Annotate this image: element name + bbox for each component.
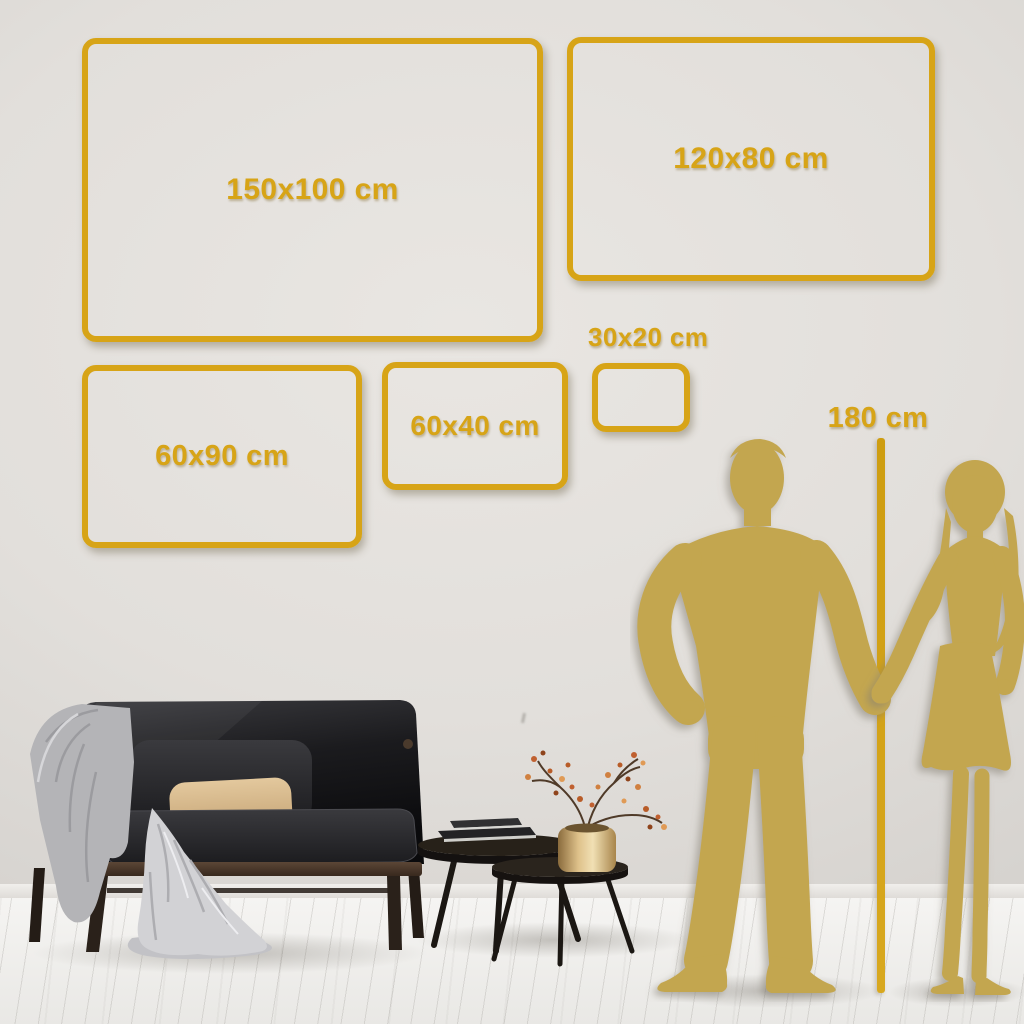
size-label-60x90: 60x90 cm: [155, 440, 289, 473]
size-label-60x40: 60x40 cm: [410, 410, 539, 442]
small-coffee-table: [492, 857, 632, 964]
size-label-30x20: 30x20 cm: [588, 322, 708, 352]
size-box-60x90: 60x90 cm: [82, 365, 362, 548]
sofa-illustration: [12, 692, 430, 964]
height-reference: 180 cm: [820, 402, 936, 435]
sofa-front-leg-right: [387, 876, 402, 950]
height-label: 180 cm: [828, 402, 929, 434]
couple-silhouette-illustration: [630, 436, 1024, 1002]
man-silhouette: [654, 439, 888, 993]
woman-silhouette: [872, 460, 1019, 995]
size-box-150x100: 150x100 cm: [82, 38, 543, 342]
size-label-30x20-wrap: 30x20 cm: [588, 322, 708, 353]
size-box-60x40: 60x40 cm: [382, 362, 568, 490]
big-coffee-table: [418, 834, 578, 951]
size-label-150x100: 150x100 cm: [226, 173, 399, 207]
woman-skirt: [922, 642, 1011, 771]
books: [438, 818, 536, 842]
sofa-rear-leg-left: [29, 868, 45, 942]
size-box-120x80: 120x80 cm: [567, 37, 935, 281]
brass-vase: [558, 824, 616, 873]
size-box-30x20: [592, 363, 690, 432]
size-label-120x80: 120x80 cm: [673, 142, 828, 176]
size-comparison-scene: 150x100 cm 120x80 cm 60x90 cm 60x40 cm 3…: [0, 0, 1024, 1024]
